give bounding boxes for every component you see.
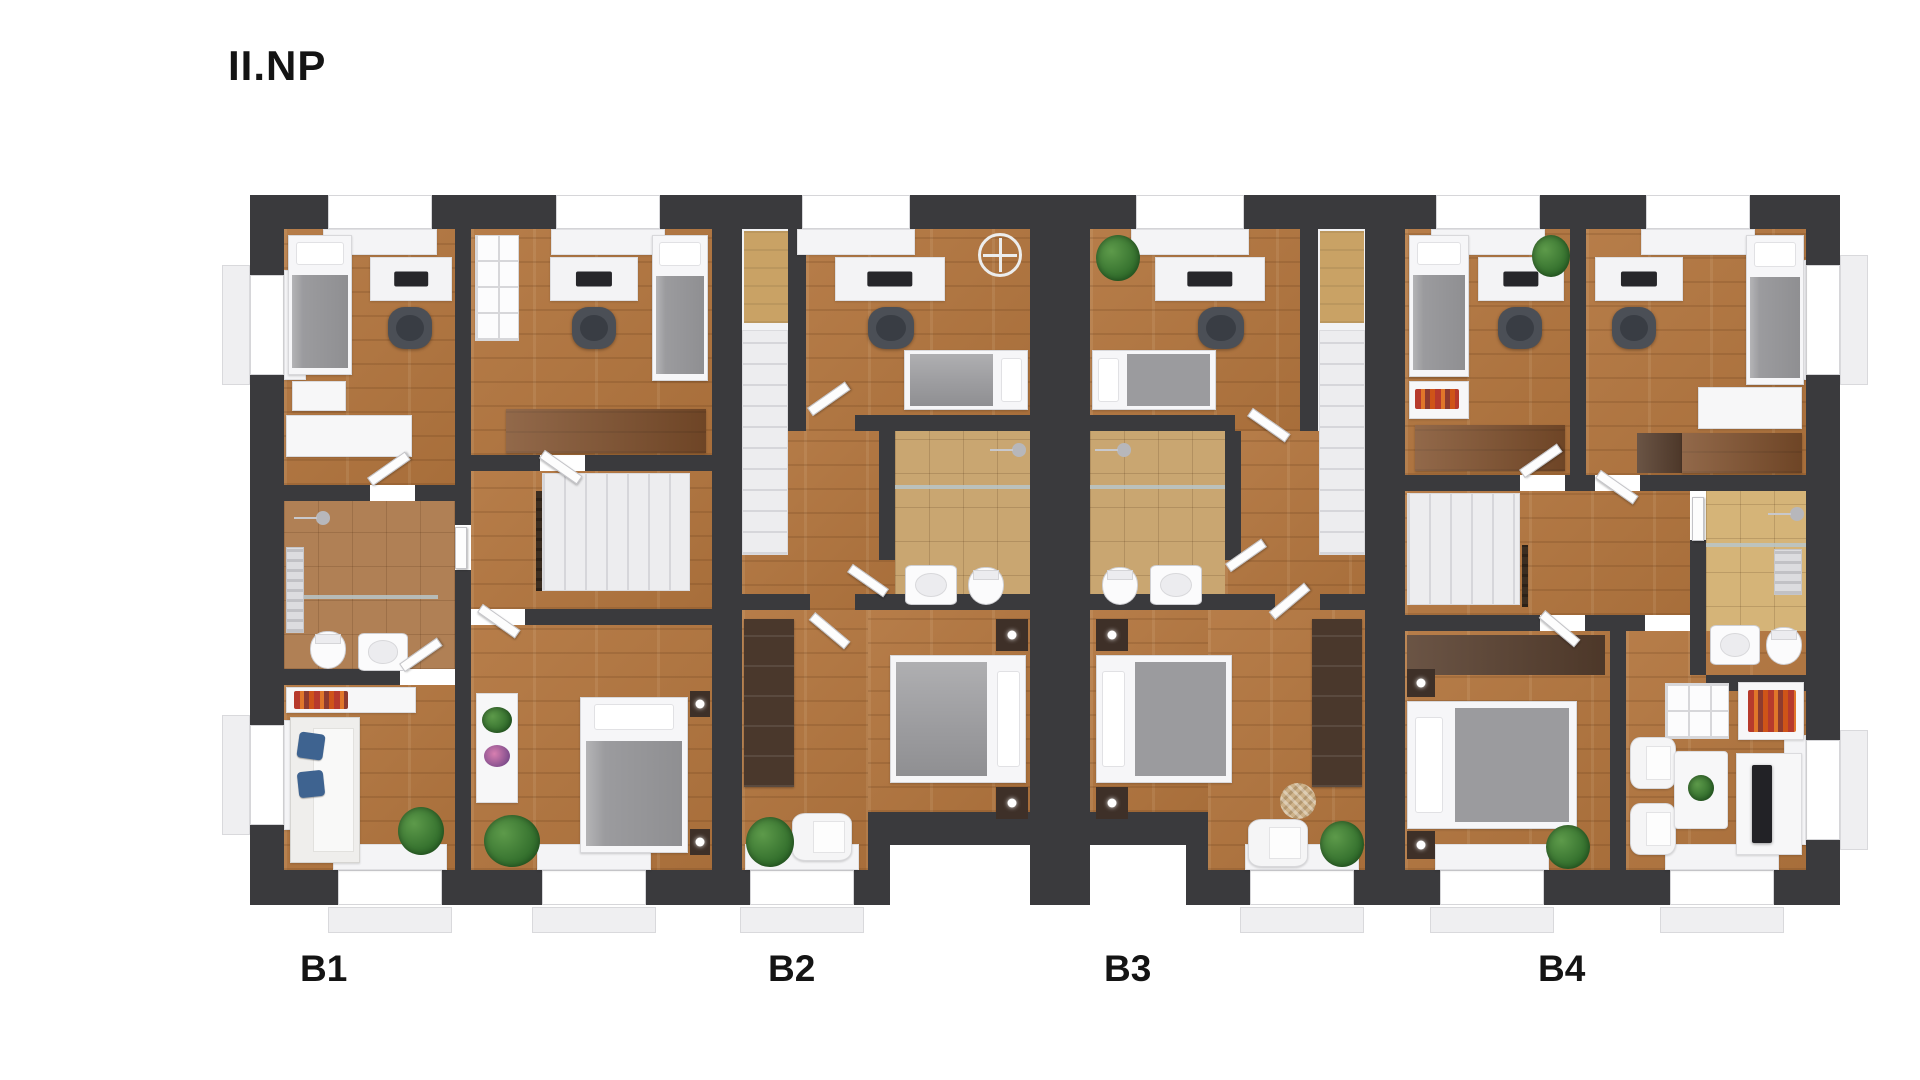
b1-divider-upper [455, 229, 471, 525]
b2-shower-glass [895, 485, 1030, 489]
b1-console-plant-2 [484, 745, 510, 767]
b3-plant-bedroom [1096, 235, 1140, 281]
b1-nightstand-1 [690, 691, 710, 717]
b4-living-divider [1610, 631, 1626, 870]
b1-toilet [310, 631, 346, 669]
b2-nightstand-1 [996, 619, 1028, 651]
floor-plan-page: II.NP B1 B2 B3 B4 [0, 0, 1920, 1080]
outer-sill-left-top [222, 265, 250, 385]
b3-plant [1320, 821, 1364, 867]
b1-wall-bedroom1-a [284, 485, 370, 501]
b1-single-bed-2 [652, 235, 708, 381]
b4-office-chair-2 [1612, 307, 1656, 349]
b1-single-bed-1 [288, 235, 352, 375]
window-b4-right-bottom [1806, 740, 1840, 840]
wall-recess-right [1186, 845, 1208, 905]
b4-nightstand-1 [1407, 669, 1435, 697]
b4-desk-2 [1595, 257, 1683, 301]
window-b4-living [1670, 870, 1774, 905]
b3-shower-glass [1090, 485, 1225, 489]
window-b1-bedroom3 [542, 870, 646, 905]
b3-armchair [1248, 819, 1308, 867]
b4-sink [1710, 625, 1760, 665]
b4-stairs-railing [1522, 545, 1528, 607]
b2-wardrobe-dark [744, 619, 794, 787]
unit-label-b1: B1 [300, 948, 347, 990]
b1-wall-bedroom1-b [415, 485, 455, 501]
b4-shelf-boxes [1665, 683, 1729, 739]
b1-wall-bathroom [284, 669, 400, 685]
b2-wall-bathroom [879, 431, 895, 560]
wall-recess-left [868, 845, 890, 905]
b2-desk [835, 257, 945, 301]
sill-b1-bedroom2 [551, 229, 665, 255]
unit-label-b2: B2 [768, 948, 815, 990]
b1-radiator [286, 547, 304, 633]
b2-single-bed [904, 350, 1028, 410]
b1-stairs [542, 473, 690, 591]
sill-b4-bedroom2 [1641, 229, 1755, 255]
b4-plant-bedroom1 [1532, 235, 1570, 277]
outer-sill-b3-master [1240, 907, 1364, 933]
b1-plant-bedroom3 [484, 815, 540, 867]
b3-single-bed [1092, 350, 1216, 410]
window-b4-bedroom1 [1436, 195, 1540, 229]
sill-b2-bedroom [797, 229, 915, 255]
b1-sofa-pillow-2 [297, 770, 326, 799]
b4-table-plant [1688, 775, 1714, 801]
window-b4-master [1440, 870, 1544, 905]
window-b4-bedroom2 [1646, 195, 1750, 229]
b4-door-bathroom [1692, 497, 1704, 541]
b3-office-chair [1198, 307, 1244, 349]
page-title: II.NP [228, 42, 326, 90]
window-b3-master [1250, 870, 1354, 905]
b1-office-chair-1 [388, 307, 432, 349]
window-b1-bedroom2 [556, 195, 660, 229]
b4-shower-head [1768, 505, 1804, 523]
b4-wall-mid-b [1585, 615, 1645, 631]
b4-tv [1752, 765, 1772, 843]
window-b1-left-bottom [250, 725, 284, 825]
b1-cabinet [286, 415, 412, 457]
b4-armchair-2 [1630, 803, 1676, 855]
b4-dresser-2a [1637, 433, 1682, 473]
outer-sill-right-bottom [1840, 730, 1868, 850]
b2-sink [905, 565, 957, 605]
b1-nightstand-2 [690, 829, 710, 855]
b4-wall-top-c [1640, 475, 1806, 491]
b4-wall-top-a [1405, 475, 1520, 491]
b1-shelving-unit [475, 235, 519, 341]
window-b1-living [338, 870, 442, 905]
sill-b4-master [1435, 844, 1549, 870]
b2-stair-wall [788, 229, 806, 431]
b4-double-bed [1407, 701, 1577, 829]
b1-stairs-railing [536, 491, 542, 591]
b4-dresser-2b [1682, 433, 1802, 473]
b3-wall-master-b [1320, 594, 1365, 610]
outer-sill-b4-living [1660, 907, 1784, 933]
b4-plant-master [1546, 825, 1590, 869]
b1-sofa-pillow-1 [296, 731, 325, 760]
outer-sill-b2-master [740, 907, 864, 933]
party-wall-b1-b2 [712, 195, 742, 905]
b4-wall-bathroom [1690, 540, 1706, 675]
b1-crib [292, 381, 346, 411]
b1-divider-lower [455, 570, 471, 870]
b4-towel-radiator [1774, 549, 1802, 595]
outer-sill-left-bottom [222, 715, 250, 835]
window-b1-left-top [250, 275, 284, 375]
b4-bedroom-divider [1570, 229, 1586, 475]
b3-desk [1155, 257, 1265, 301]
b1-desk-2 [550, 257, 638, 301]
outer-sill-b1-living [328, 907, 452, 933]
b2-shower-head [990, 441, 1026, 459]
b2-plant [746, 817, 794, 867]
b3-stairs [1319, 330, 1365, 555]
b1-wall-bedroom2-b [585, 455, 712, 471]
b1-door-bathroom [455, 527, 467, 569]
b2-office-chair [868, 307, 914, 349]
b3-wall-bedroom [1090, 415, 1235, 431]
b4-bench-books [1415, 389, 1459, 409]
b3-double-bed [1096, 655, 1232, 783]
b4-office-chair-1 [1498, 307, 1542, 349]
b2-toilet [968, 567, 1004, 605]
b2-stairs [742, 330, 788, 555]
b1-wall-bedroom3 [525, 609, 712, 625]
b1-plant-living [398, 807, 444, 855]
b4-single-bed-2 [1746, 235, 1804, 385]
b1-shower-glass [286, 595, 438, 599]
b2-double-bed [890, 655, 1026, 783]
b2-wall-master-a [742, 594, 810, 610]
outer-sill-right-top [1840, 255, 1868, 385]
b4-wall-top-b [1565, 475, 1595, 491]
b1-console-plant-1 [482, 707, 512, 733]
b3-stair-wall [1300, 229, 1318, 431]
sill-b3-bedroom [1131, 229, 1249, 255]
b3-nightstand-1 [1096, 619, 1128, 651]
b4-wall-mid-a [1405, 615, 1540, 631]
b4-shower-glass [1706, 543, 1806, 547]
b3-shower-head [1095, 441, 1131, 459]
b3-nightstand-2 [1096, 787, 1128, 819]
b1-wall-bedroom2-a [471, 455, 540, 471]
b1-shower-head [294, 509, 330, 527]
window-b3-bedroom [1136, 195, 1244, 229]
b1-sideboard [506, 409, 706, 453]
party-wall-b2-b3 [1030, 195, 1090, 905]
floor-plan [250, 195, 1840, 905]
b2-ceiling-fan [978, 233, 1022, 277]
b3-wall-bathroom [1225, 431, 1241, 560]
b2-armchair [792, 813, 852, 861]
window-b2-master [750, 870, 854, 905]
b3-sink [1150, 565, 1202, 605]
b4-cabinet [1698, 387, 1802, 429]
b4-bookshelf-books [1748, 690, 1796, 732]
unit-label-b4: B4 [1538, 948, 1585, 990]
b2-nightstand-2 [996, 787, 1028, 819]
b1-books [294, 691, 348, 709]
b4-armchair-1 [1630, 737, 1676, 789]
b2-wardrobe [744, 231, 788, 323]
party-wall-b3-b4 [1365, 195, 1405, 905]
b4-nightstand-2 [1407, 831, 1435, 859]
unit-label-b3: B3 [1104, 948, 1151, 990]
b3-wardrobe [1320, 231, 1364, 323]
outer-sill-b1-bedroom3 [532, 907, 656, 933]
window-b1-bedroom1 [328, 195, 432, 229]
b1-desk-1 [370, 257, 452, 301]
b1-double-bed [580, 697, 688, 853]
b4-toilet [1766, 627, 1802, 665]
b1-office-chair-2 [572, 307, 616, 349]
b4-stairs [1407, 493, 1520, 605]
b3-wardrobe-dark [1312, 619, 1362, 787]
b3-pouf [1280, 783, 1316, 819]
window-b4-right-top [1806, 265, 1840, 375]
b3-toilet [1102, 567, 1138, 605]
b4-single-bed-1 [1409, 235, 1469, 377]
outer-sill-b4-master [1430, 907, 1554, 933]
window-b2-bedroom [802, 195, 910, 229]
b2-wall-bedroom [855, 415, 1030, 431]
